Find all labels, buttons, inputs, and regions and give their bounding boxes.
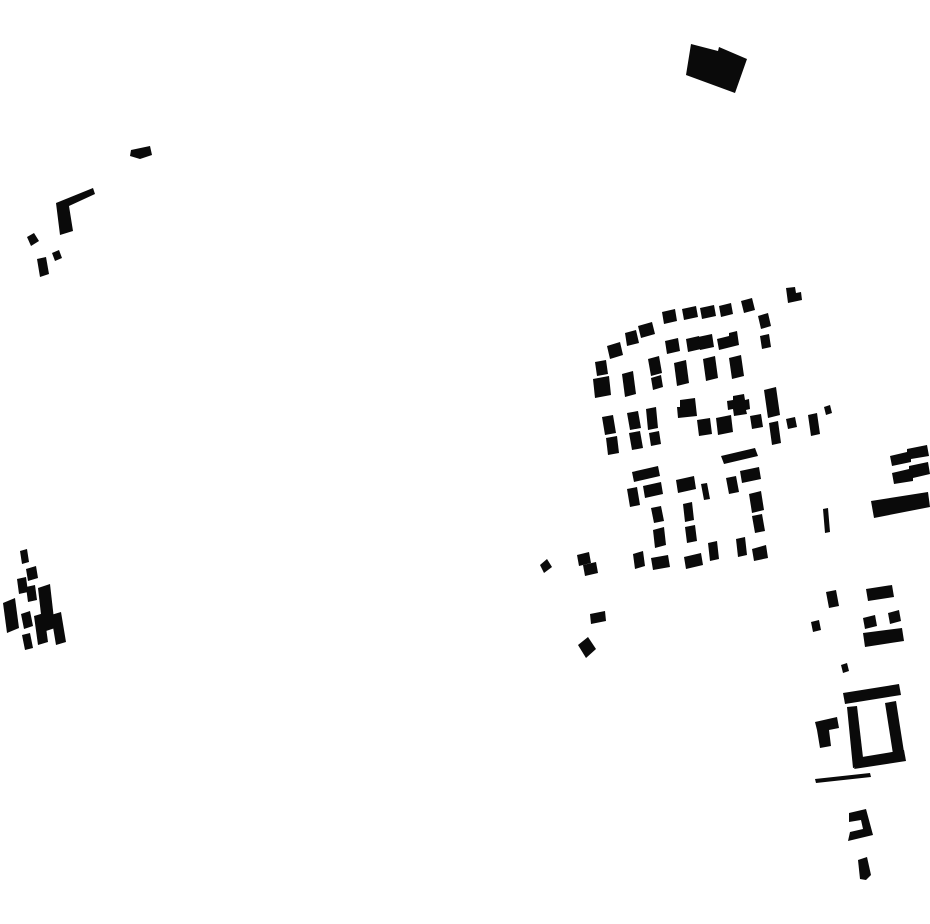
building-footprint xyxy=(684,553,703,569)
building-footprint xyxy=(750,414,763,429)
building-footprint xyxy=(741,298,755,313)
building-footprint-map xyxy=(0,0,930,924)
building-footprint xyxy=(703,356,718,381)
building-footprint xyxy=(649,431,661,446)
building-footprint xyxy=(602,415,616,435)
building-footprint xyxy=(595,360,608,376)
building-footprint xyxy=(866,585,894,601)
building-footprint xyxy=(26,566,38,581)
building-footprint xyxy=(629,431,643,450)
building-footprint xyxy=(21,611,33,629)
building-footprint xyxy=(764,387,780,418)
building-footprint xyxy=(892,462,930,484)
building-footprint xyxy=(863,615,877,629)
building-footprint xyxy=(633,551,645,569)
building-footprint xyxy=(721,448,758,464)
building-footprint xyxy=(682,306,698,320)
building-footprint xyxy=(871,492,930,518)
building-footprint xyxy=(590,611,606,624)
building-footprint xyxy=(863,628,904,647)
building-footprint xyxy=(20,549,29,564)
building-footprint xyxy=(632,466,660,482)
building-footprint xyxy=(758,313,771,329)
building-footprint xyxy=(17,577,28,594)
building-footprint xyxy=(708,541,719,561)
building-footprint xyxy=(752,514,765,533)
building-footprint xyxy=(815,773,871,783)
building-footprint xyxy=(890,445,929,466)
building-footprint xyxy=(786,287,802,303)
building-footprint xyxy=(683,502,694,522)
building-footprint xyxy=(648,356,662,376)
building-footprint xyxy=(824,405,832,415)
building-footprint xyxy=(736,537,747,557)
building-footprint xyxy=(700,305,716,319)
building-footprint xyxy=(740,467,761,483)
building-footprint xyxy=(808,413,820,436)
building-footprint xyxy=(888,610,901,624)
building-footprint xyxy=(749,491,764,513)
building-footprint xyxy=(843,684,901,704)
building-footprint xyxy=(653,527,666,548)
building-footprint xyxy=(651,555,670,570)
building-footprint xyxy=(37,257,49,277)
building-footprint xyxy=(27,233,39,246)
building-footprint xyxy=(815,717,839,748)
building-footprint xyxy=(52,250,62,261)
building-footprint xyxy=(51,612,66,645)
building-footprint xyxy=(651,375,663,390)
building-footprint xyxy=(786,417,797,429)
building-footprint xyxy=(697,418,712,436)
building-footprint xyxy=(578,637,596,658)
building-footprint xyxy=(665,338,680,354)
building-footprint xyxy=(716,415,733,435)
building-footprint xyxy=(811,620,821,632)
building-footprint xyxy=(130,146,152,159)
building-footprint xyxy=(622,371,636,397)
building-footprint xyxy=(651,506,664,523)
building-footprint xyxy=(627,487,640,507)
building-footprint xyxy=(607,342,623,359)
building-footprint xyxy=(56,188,95,235)
building-footprint xyxy=(686,44,747,93)
building-footprint xyxy=(752,545,768,561)
building-footprint xyxy=(676,476,696,493)
building-footprint xyxy=(719,303,733,317)
building-footprint xyxy=(727,394,750,416)
building-footprint xyxy=(760,334,771,349)
building-footprint xyxy=(593,376,611,398)
building-footprint xyxy=(22,633,33,650)
map-canvas xyxy=(0,0,930,924)
building-footprint xyxy=(606,436,619,455)
building-footprint xyxy=(540,559,552,573)
building-footprint xyxy=(677,398,697,418)
building-footprint xyxy=(848,809,873,841)
building-footprint xyxy=(841,663,849,673)
building-footprint xyxy=(625,330,639,346)
building-footprint xyxy=(823,508,830,533)
building-footprint xyxy=(717,331,739,350)
building-footprint xyxy=(885,701,904,754)
building-footprint xyxy=(729,355,744,379)
building-footprint xyxy=(726,476,739,494)
building-footprint xyxy=(646,407,658,430)
building-footprint xyxy=(662,309,677,324)
building-footprint xyxy=(685,525,697,543)
building-footprint xyxy=(643,482,663,498)
building-footprint xyxy=(826,590,839,608)
building-footprint xyxy=(26,585,37,602)
building-footprint xyxy=(701,483,710,500)
building-footprint xyxy=(674,360,689,386)
building-footprint xyxy=(627,411,641,430)
building-footprint xyxy=(858,857,871,880)
building-footprint xyxy=(638,322,655,338)
building-footprint xyxy=(3,598,19,633)
building-footprint xyxy=(698,334,714,350)
building-footprint xyxy=(769,421,781,445)
